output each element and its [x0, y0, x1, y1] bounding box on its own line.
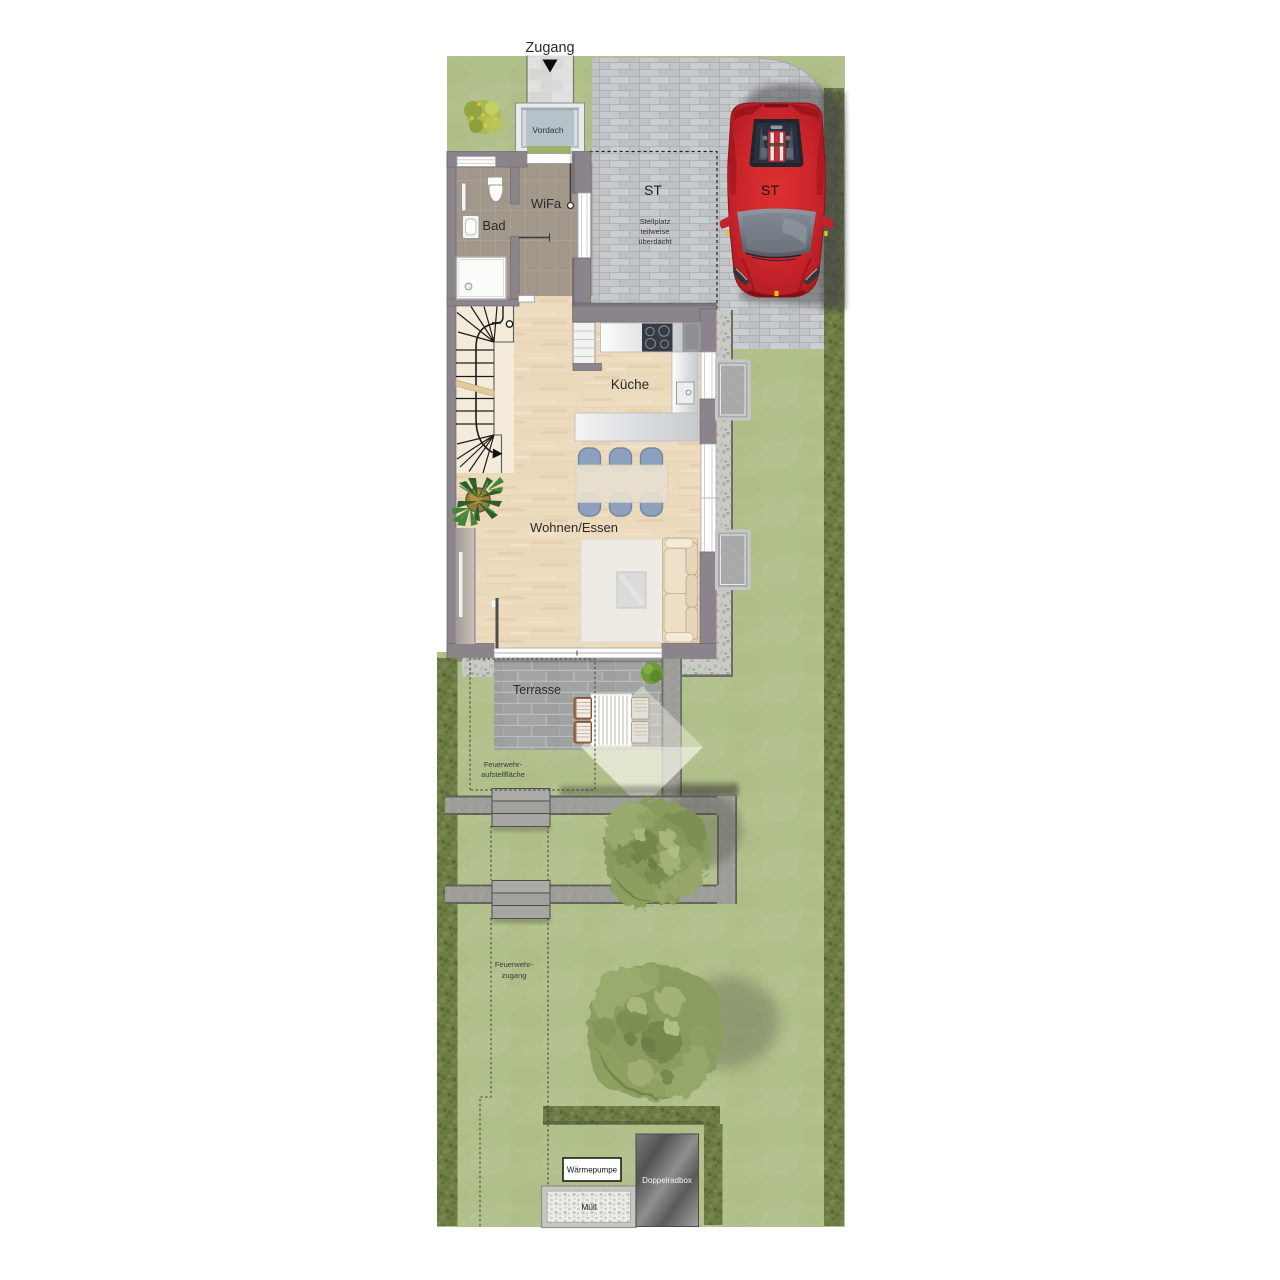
svg-text:ST: ST [761, 182, 779, 198]
svg-text:Müll: Müll [581, 1202, 597, 1212]
svg-text:Feuerwehr-: Feuerwehr- [484, 760, 523, 769]
svg-text:WiFa: WiFa [531, 196, 562, 211]
svg-text:Terrasse: Terrasse [513, 683, 561, 697]
svg-text:Doppelradbox: Doppelradbox [642, 1176, 692, 1185]
svg-text:Stellplatz: Stellplatz [640, 217, 671, 226]
svg-text:Vordach: Vordach [532, 125, 563, 135]
svg-text:teilweise: teilweise [641, 227, 670, 236]
svg-text:Küche: Küche [611, 377, 649, 392]
svg-text:aufstellfläche: aufstellfläche [481, 770, 525, 779]
svg-text:Feuerwehr-: Feuerwehr- [495, 960, 534, 969]
svg-text:Zugang: Zugang [525, 40, 574, 56]
svg-text:Bad: Bad [482, 218, 505, 233]
svg-text:Wärmepumpe: Wärmepumpe [567, 1166, 618, 1175]
svg-text:ST: ST [644, 182, 662, 198]
svg-text:zugang: zugang [502, 971, 527, 980]
svg-text:Wohnen/Essen: Wohnen/Essen [530, 520, 618, 535]
svg-text:überdacht: überdacht [638, 237, 672, 246]
